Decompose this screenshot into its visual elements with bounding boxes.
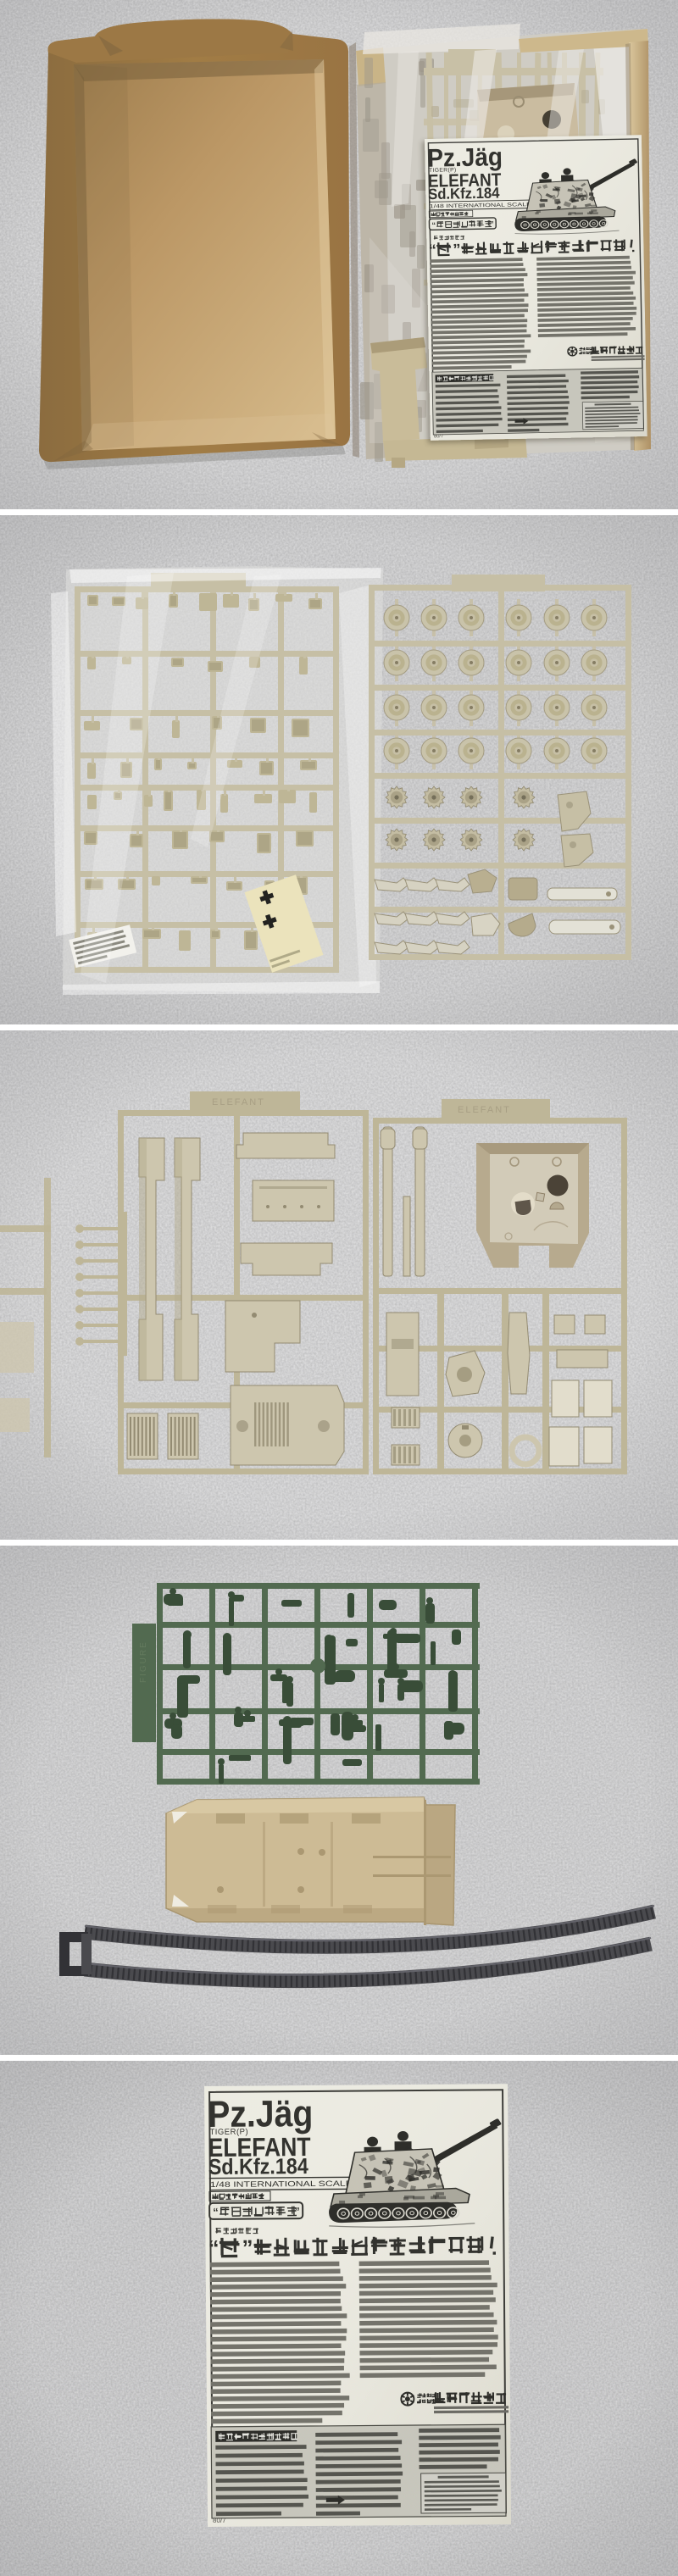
svg-text:”: ” [453,241,461,258]
svg-text:Sd.Kfz.184: Sd.Kfz.184 [428,185,501,203]
svg-text:“: “ [213,2206,219,2218]
svg-text:1/48 INTERNATIONAL SCALE: 1/48 INTERNATIONAL SCALE [210,2179,353,2189]
svg-text:“: “ [428,241,436,258]
svg-text:“: “ [431,221,436,230]
svg-text:“: “ [208,2235,219,2261]
svg-text:ELEFANT: ELEFANT [212,1097,265,1108]
svg-text:Sd.Kfz.184: Sd.Kfz.184 [208,2153,309,2179]
svg-text:80/7: 80/7 [434,434,443,439]
svg-text:”: ” [294,2205,300,2218]
svg-text:ELEFANT: ELEFANT [458,1105,511,1115]
svg-text:80/7: 80/7 [213,2517,226,2524]
svg-text:”: ” [242,2235,253,2261]
svg-text:”: ” [490,219,494,228]
svg-text:FIGURE: FIGURE [139,1641,148,1683]
